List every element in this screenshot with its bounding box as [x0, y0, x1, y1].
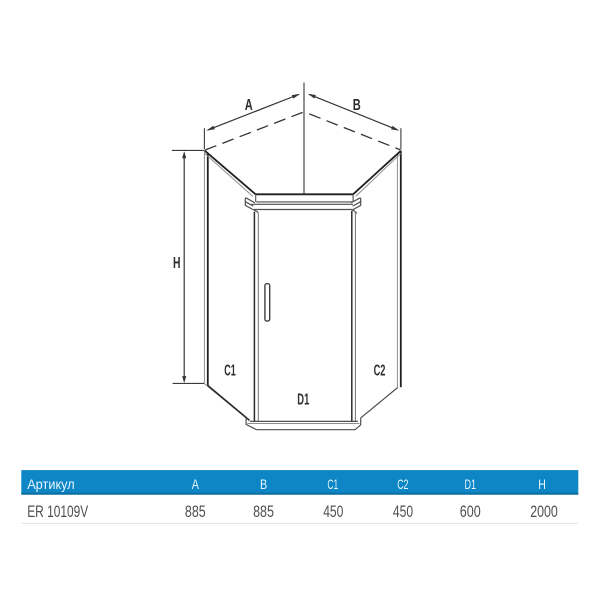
- svg-text:B: B: [260, 477, 267, 492]
- svg-text:C1: C1: [327, 477, 338, 492]
- svg-text:2000: 2000: [530, 502, 558, 521]
- svg-text:C2: C2: [397, 477, 408, 492]
- svg-text:H: H: [173, 255, 181, 272]
- svg-text:A: A: [192, 477, 200, 492]
- svg-text:H: H: [538, 477, 546, 492]
- svg-text:450: 450: [393, 502, 413, 521]
- svg-text:D1: D1: [297, 392, 309, 409]
- svg-text:885: 885: [185, 502, 206, 521]
- svg-text:Артикул: Артикул: [27, 477, 74, 492]
- svg-text:B: B: [353, 97, 361, 114]
- svg-text:ER 10109V: ER 10109V: [27, 502, 88, 521]
- svg-text:600: 600: [460, 502, 481, 521]
- svg-text:D1: D1: [465, 477, 477, 492]
- svg-text:450: 450: [323, 502, 343, 521]
- svg-text:C1: C1: [224, 363, 236, 380]
- svg-text:885: 885: [253, 502, 274, 521]
- svg-text:C2: C2: [374, 363, 386, 380]
- svg-text:A: A: [245, 97, 253, 114]
